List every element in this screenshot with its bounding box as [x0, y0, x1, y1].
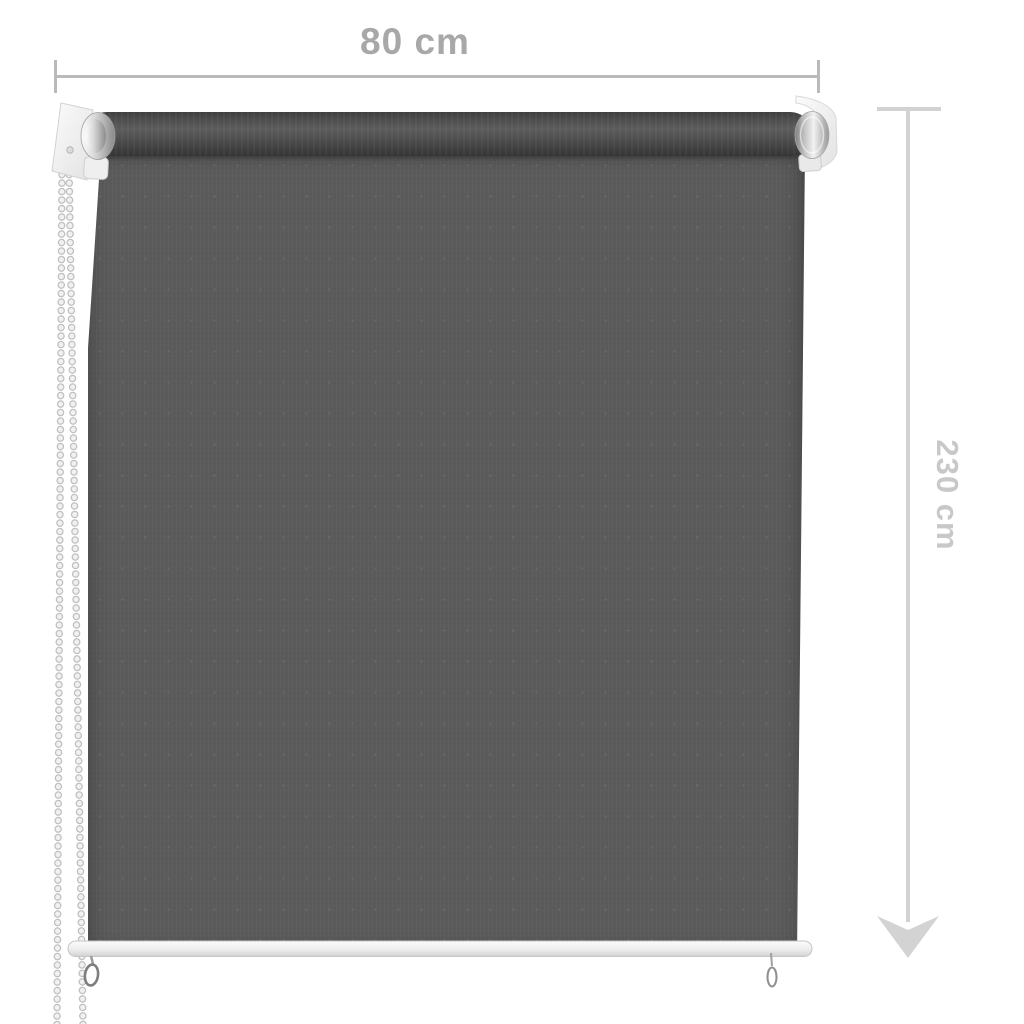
right-eyelet [768, 953, 777, 987]
screw-icon [67, 147, 73, 153]
left-eyelet [84, 956, 100, 986]
product-dimension-image: 80 cm 230 cm [0, 0, 1024, 1024]
pull-chain-right-strand-beads [69, 166, 83, 1024]
left-end-cap-hub [85, 119, 106, 153]
right-bracket [795, 96, 837, 172]
left-eyelet-ring [84, 964, 100, 987]
right-eyelet-ring [768, 968, 777, 987]
pull-chain [57, 166, 83, 1024]
right-eyelet-stem [771, 953, 772, 966]
blind-hardware-layer [0, 0, 1024, 1024]
chain-housing [83, 156, 108, 179]
left-bracket [52, 103, 115, 180]
left-eyelet-stem [91, 956, 93, 964]
bottom-rail [68, 941, 812, 957]
